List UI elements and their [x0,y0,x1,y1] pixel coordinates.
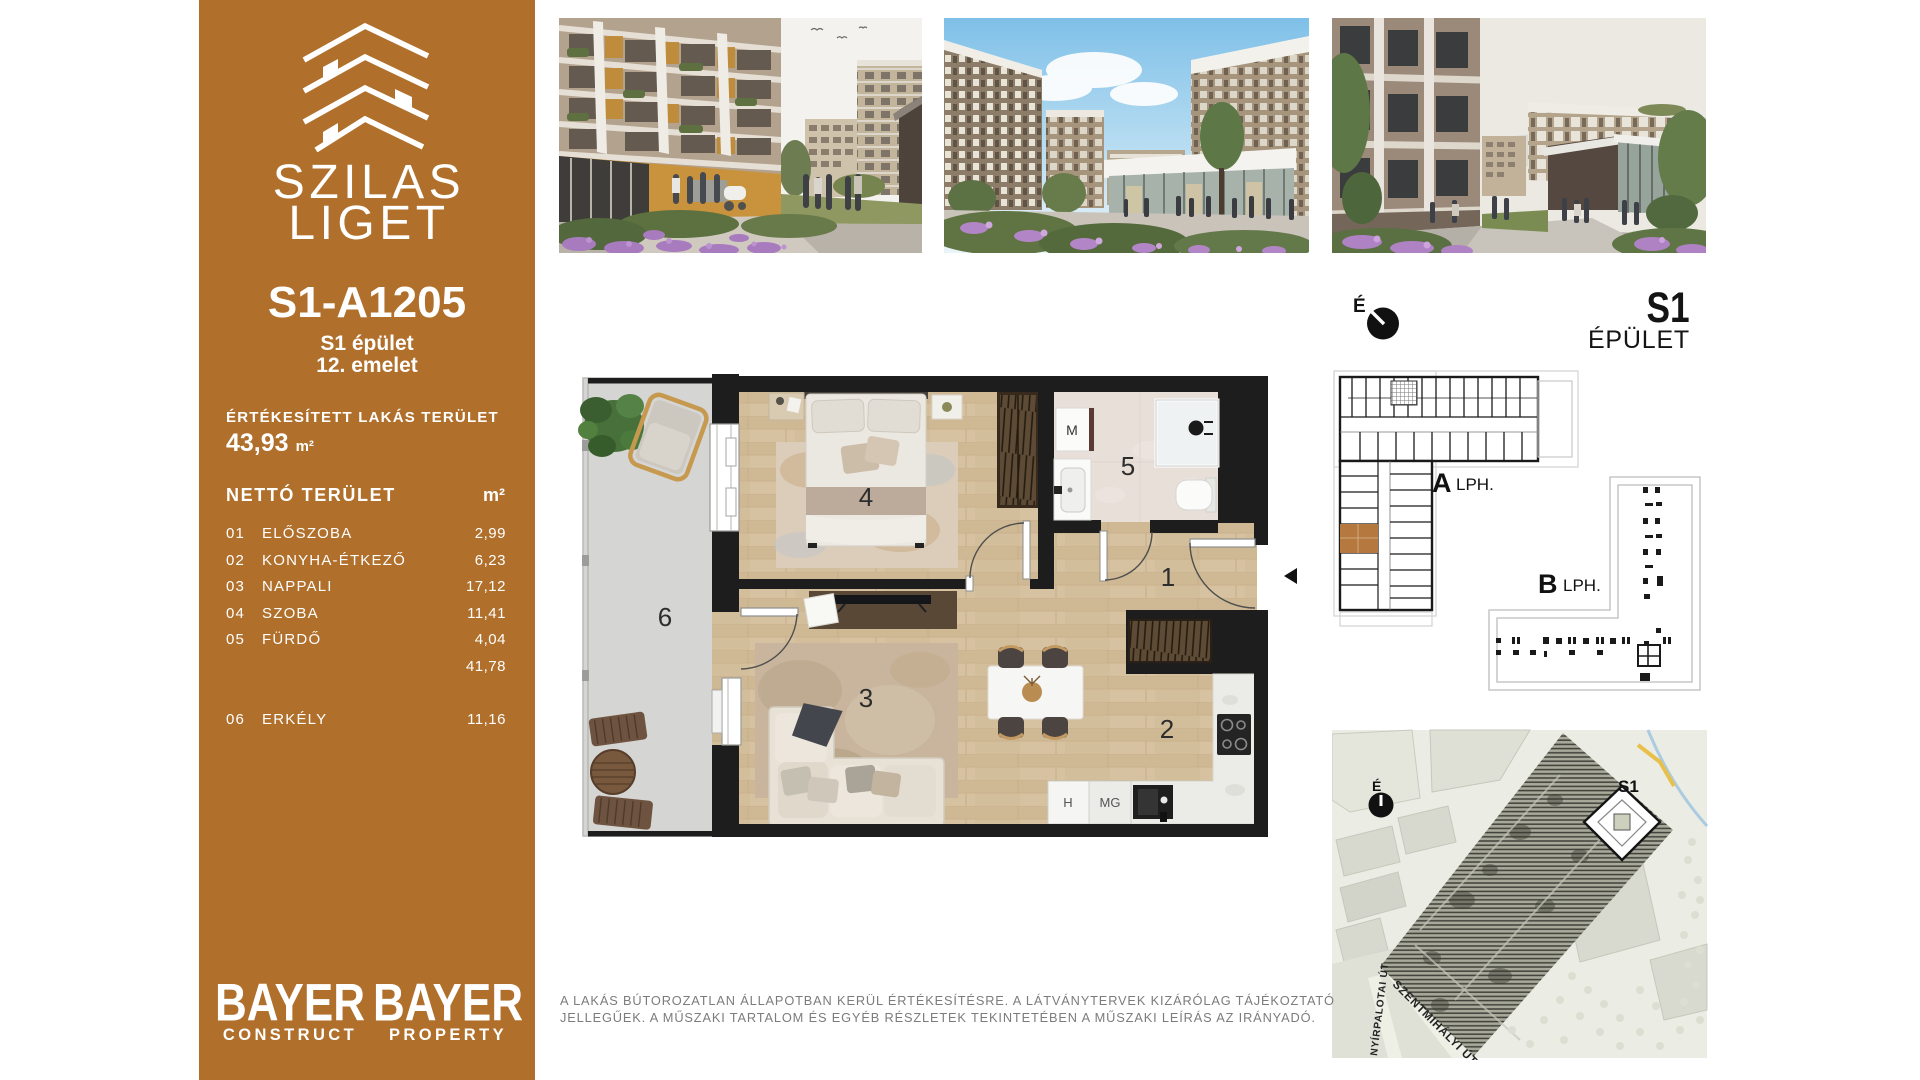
svg-text:H: H [1063,795,1072,810]
svg-text:B: B [1538,569,1558,599]
svg-text:5: 5 [1121,451,1135,481]
svg-text:S1: S1 [1618,777,1639,796]
svg-text:3: 3 [859,683,873,713]
svg-text:M: M [1066,422,1078,438]
svg-text:1: 1 [1161,562,1175,592]
svg-text:MG: MG [1100,795,1121,810]
svg-text:É: É [1372,778,1381,794]
svg-text:É: É [1353,295,1366,317]
svg-text:A: A [1432,468,1452,498]
svg-text:4: 4 [859,482,873,512]
svg-text:LPH.: LPH. [1456,475,1494,494]
svg-text:6: 6 [658,602,672,632]
svg-text:LPH.: LPH. [1563,576,1601,595]
svg-text:2: 2 [1160,714,1174,744]
